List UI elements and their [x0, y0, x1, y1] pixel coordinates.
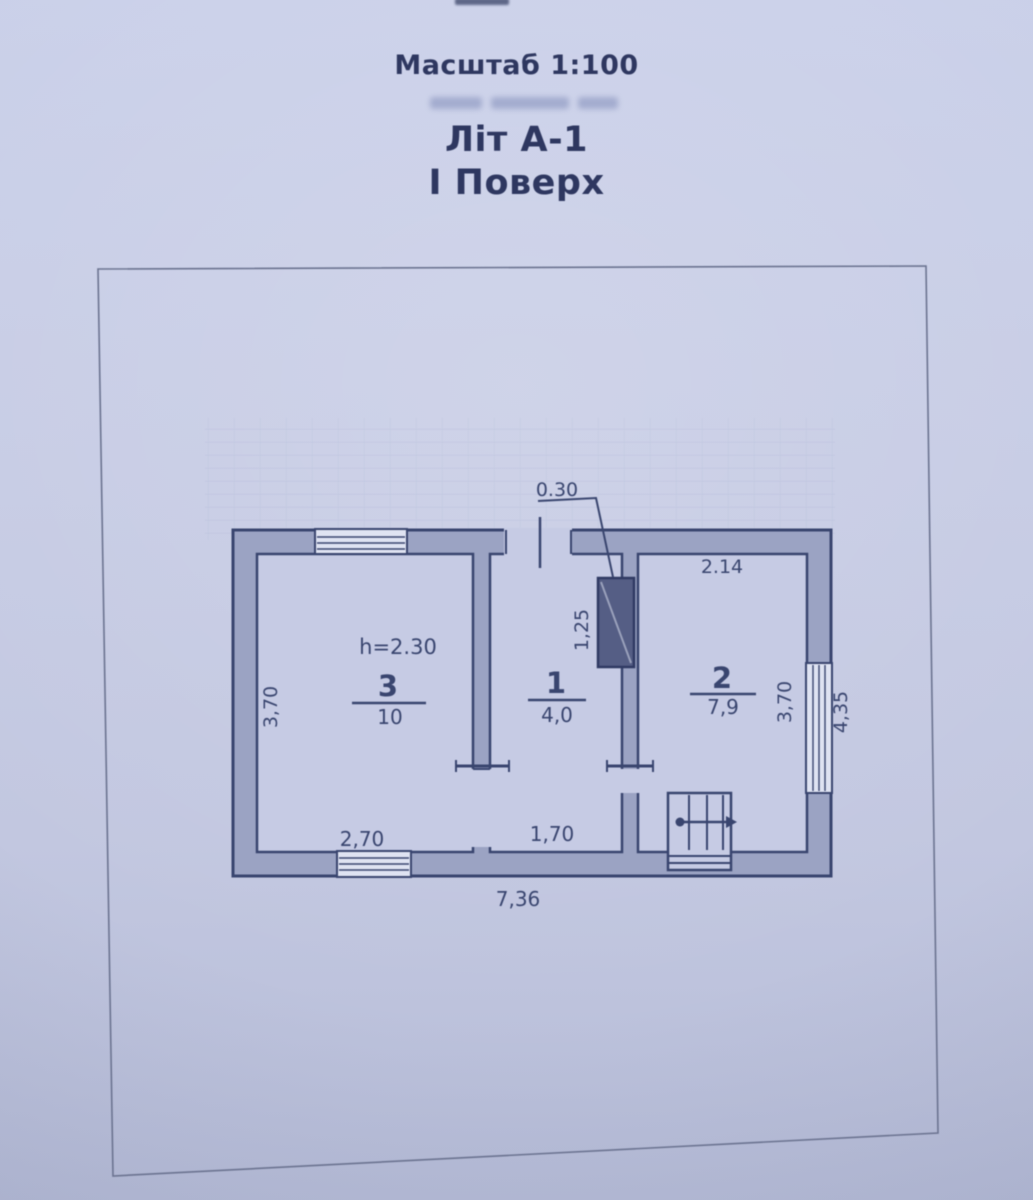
room2-area: 7,9	[707, 695, 739, 719]
dim-room3-bottom: 2,70	[340, 827, 385, 851]
stove-block	[598, 578, 634, 667]
room3-area: 10	[377, 705, 402, 729]
dim-room1-bottom: 1,70	[530, 822, 575, 846]
room1-number: 1	[546, 666, 566, 700]
dim-room2-right: 3,70	[774, 681, 796, 723]
window-top-room3	[315, 529, 407, 554]
dim-right-overall: 4,35	[830, 691, 852, 733]
dim-room3-left: 3,70	[260, 686, 282, 728]
room2-number: 2	[712, 661, 732, 695]
room3-number: 3	[378, 669, 398, 703]
dim-bottom-overall: 7,36	[496, 887, 541, 911]
dim-stove-length: 1,25	[571, 609, 593, 651]
room3-height-note: h=2.30	[359, 635, 437, 659]
graph-paper-bleed	[205, 418, 835, 540]
dim-room2-top: 2.14	[701, 556, 743, 578]
floor-plan-drawing: 0.30 2.14 1,25 3,70 3,70 4,35 2,70 1,70 …	[0, 0, 1033, 1200]
photographed-floor-plan-page: Масштаб 1:100 Літ А-1 І Поверх	[0, 0, 1033, 1200]
window-right-room2	[806, 663, 832, 793]
room1-area: 4,0	[541, 703, 573, 727]
staircase	[668, 793, 737, 870]
window-bottom-room3	[337, 851, 411, 877]
dim-stove-width: 0.30	[536, 479, 578, 501]
